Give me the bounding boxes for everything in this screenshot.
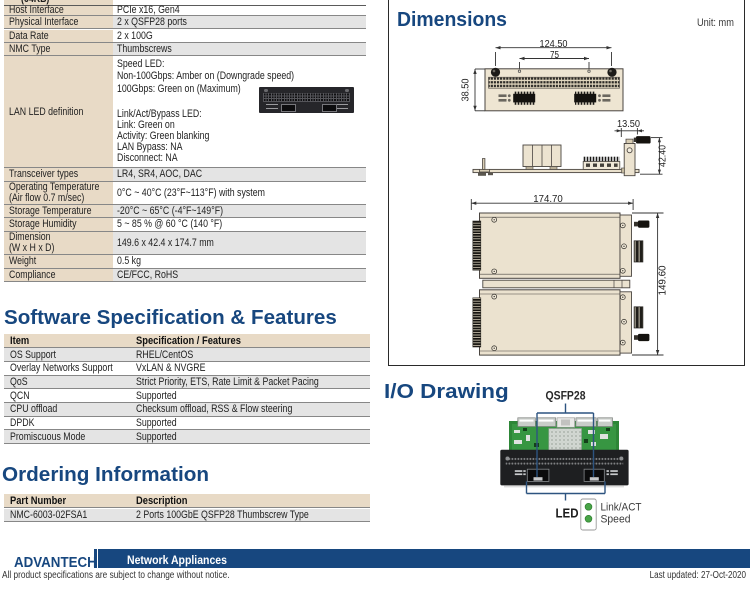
svg-text:124.50: 124.50 <box>540 39 568 50</box>
svg-text:QSFP28: QSFP28 <box>546 389 586 403</box>
svg-text:38.50: 38.50 <box>461 78 472 101</box>
svg-text:13.50: 13.50 <box>617 119 640 130</box>
svg-text:149.60: 149.60 <box>658 265 669 295</box>
svg-text:75: 75 <box>550 50 559 61</box>
svg-text:Link/ACT: Link/ACT <box>601 501 642 513</box>
svg-text:LED: LED <box>556 507 579 521</box>
svg-text:42.40: 42.40 <box>658 145 669 167</box>
svg-text:Speed: Speed <box>601 514 631 526</box>
